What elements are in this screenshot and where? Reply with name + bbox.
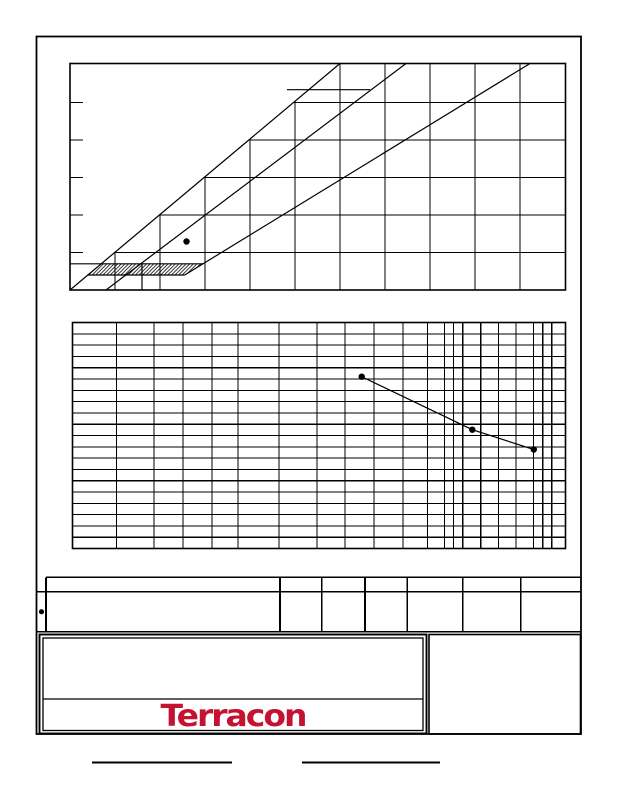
- legend-symbol-dot: [39, 609, 44, 614]
- gradation-data-point: [469, 427, 475, 433]
- plasticity-data-point: [183, 238, 189, 244]
- gradation-chart: [73, 323, 566, 549]
- u-line: [106, 64, 406, 291]
- plasticity-chart: [70, 64, 566, 291]
- report-page: Terracon: [0, 0, 618, 800]
- page-border-rect: [37, 37, 582, 735]
- gradation-data-point: [531, 446, 537, 452]
- page-border: [37, 37, 582, 735]
- terracon-logo-text: Terracon: [160, 700, 305, 730]
- clml-hatched-zone: [88, 264, 203, 275]
- report-linework: [0, 0, 618, 800]
- plasticity-chart-frame: [70, 64, 566, 291]
- pi-axis-ticks: [70, 103, 83, 253]
- legend-table: [37, 577, 581, 631]
- terracon-logo: Terracon: [43, 700, 423, 730]
- gradation-data-point: [359, 374, 365, 380]
- legend-table-lines: [37, 577, 581, 631]
- a-line: [185, 64, 530, 276]
- title-block-right-pane: [429, 635, 581, 735]
- plasticity-grid: [70, 64, 566, 291]
